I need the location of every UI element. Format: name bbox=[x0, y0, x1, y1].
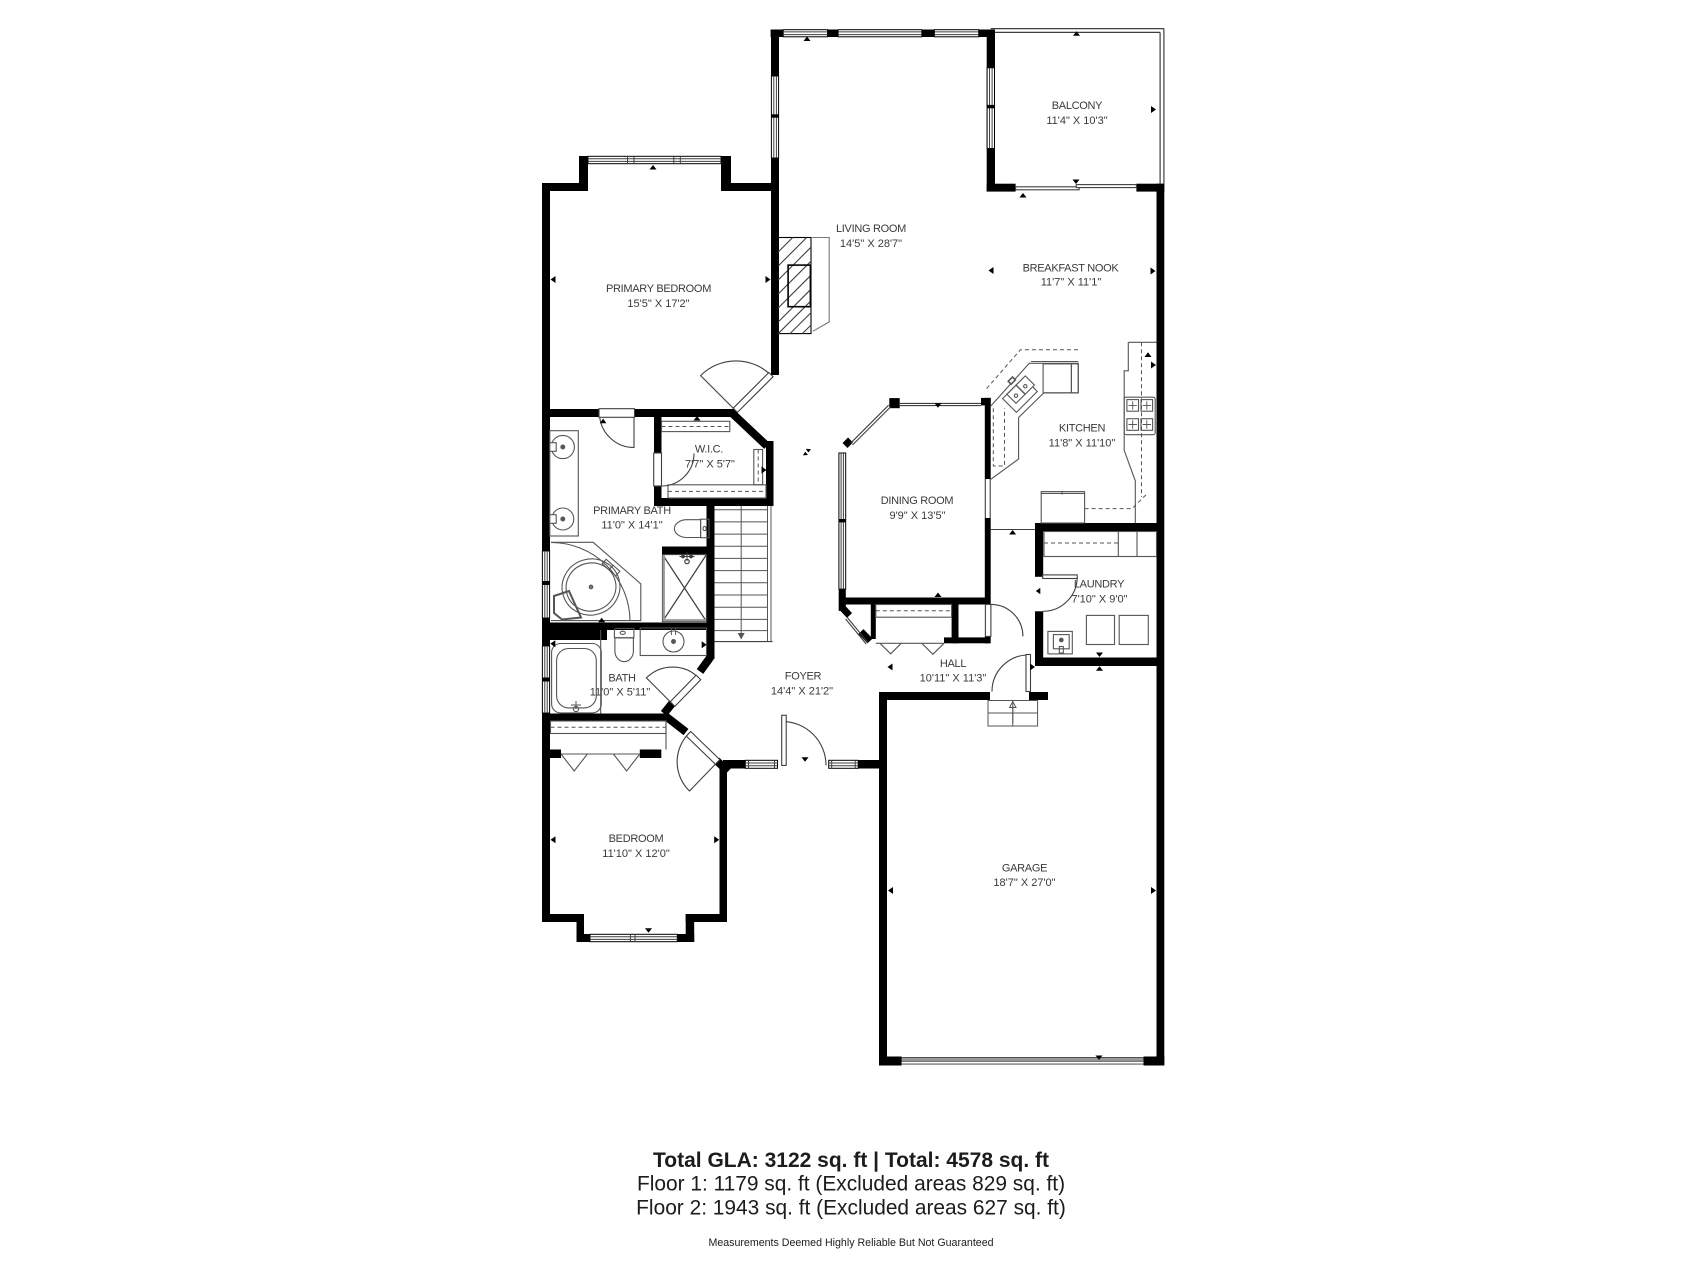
svg-text:9'9" X 13'5": 9'9" X 13'5" bbox=[889, 510, 945, 522]
svg-text:14'5" X 28'7": 14'5" X 28'7" bbox=[840, 238, 902, 250]
svg-text:11'4" X 10'3": 11'4" X 10'3" bbox=[1046, 115, 1107, 127]
svg-text:Total GLA: 3122 sq. ft | Total: Total GLA: 3122 sq. ft | Total: 4578 sq.… bbox=[653, 1149, 1049, 1172]
svg-text:HALL: HALL bbox=[940, 658, 966, 670]
svg-text:BREAKFAST NOOK: BREAKFAST NOOK bbox=[1023, 263, 1120, 275]
svg-text:Floor 1: 1179 sq. ft (Excluded: Floor 1: 1179 sq. ft (Excluded areas 829… bbox=[637, 1173, 1065, 1196]
svg-text:BEDROOM: BEDROOM bbox=[609, 833, 664, 845]
svg-text:11'10" X 12'0": 11'10" X 12'0" bbox=[602, 848, 670, 860]
svg-text:11'0" X 14'1": 11'0" X 14'1" bbox=[601, 520, 662, 532]
svg-text:11'8" X 11'10": 11'8" X 11'10" bbox=[1049, 438, 1116, 450]
svg-text:Measurements Deemed Highly Rel: Measurements Deemed Highly Reliable But … bbox=[708, 1237, 993, 1249]
svg-text:11'7" X 11'1": 11'7" X 11'1" bbox=[1041, 277, 1102, 289]
svg-text:BALCONY: BALCONY bbox=[1052, 100, 1103, 112]
svg-text:DINING ROOM: DINING ROOM bbox=[881, 495, 954, 507]
svg-text:10'11" X 11'3": 10'11" X 11'3" bbox=[920, 673, 987, 685]
svg-text:LAUNDRY: LAUNDRY bbox=[1074, 579, 1125, 591]
svg-text:KITCHEN: KITCHEN bbox=[1059, 423, 1106, 435]
svg-text:7'7" X 5'7": 7'7" X 5'7" bbox=[685, 459, 735, 471]
svg-text:11'0" X 5'11": 11'0" X 5'11" bbox=[590, 687, 651, 699]
svg-text:14'4" X 21'2": 14'4" X 21'2" bbox=[771, 686, 833, 698]
svg-text:W.I.C.: W.I.C. bbox=[695, 444, 723, 456]
svg-text:Floor 2: 1943 sq. ft (Excluded: Floor 2: 1943 sq. ft (Excluded areas 627… bbox=[636, 1197, 1066, 1220]
svg-text:18'7" X 27'0": 18'7" X 27'0" bbox=[993, 877, 1055, 889]
svg-text:LIVING ROOM: LIVING ROOM bbox=[836, 223, 906, 235]
svg-text:PRIMARY BATH: PRIMARY BATH bbox=[593, 505, 671, 517]
svg-text:15'5" X 17'2": 15'5" X 17'2" bbox=[627, 298, 689, 310]
svg-text:7'10" X 9'0": 7'10" X 9'0" bbox=[1071, 594, 1127, 606]
svg-text:FOYER: FOYER bbox=[785, 671, 822, 683]
svg-text:GARAGE: GARAGE bbox=[1002, 863, 1047, 875]
svg-text:PRIMARY BEDROOM: PRIMARY BEDROOM bbox=[606, 283, 711, 295]
svg-text:BATH: BATH bbox=[608, 673, 636, 685]
